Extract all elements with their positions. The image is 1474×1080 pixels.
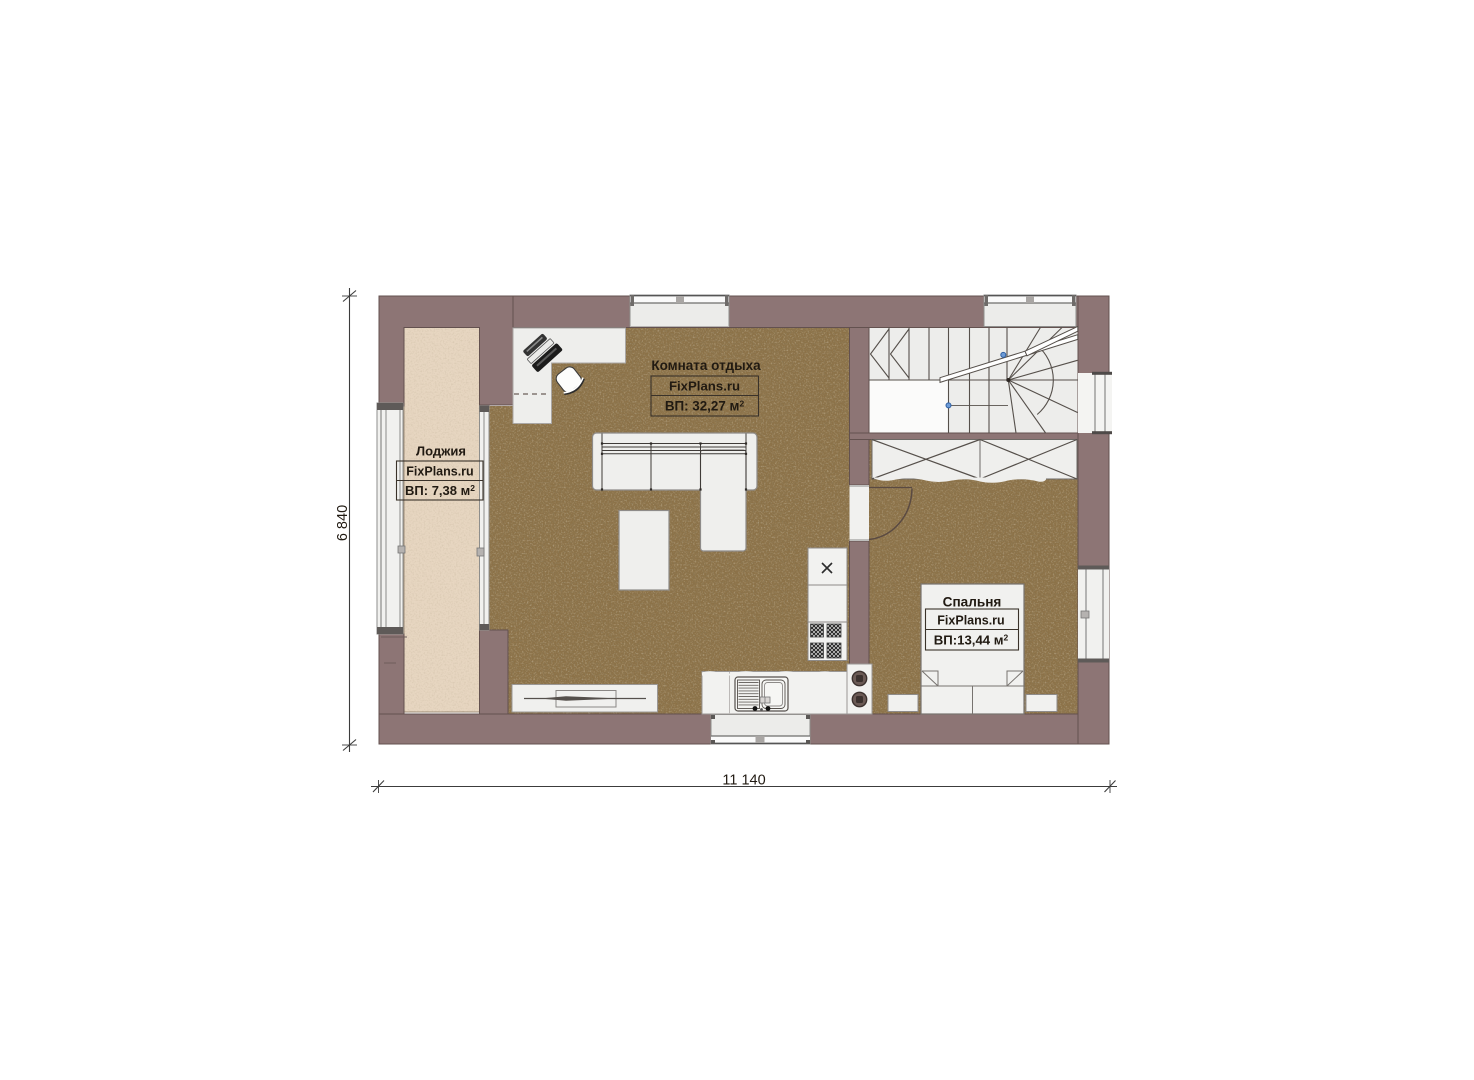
svg-text:ВП: 32,27 м2: ВП: 32,27 м2 bbox=[665, 399, 745, 414]
svg-text:6 840: 6 840 bbox=[335, 505, 351, 541]
svg-text:FixPlans.ru: FixPlans.ru bbox=[937, 614, 1004, 628]
svg-text:Лоджия: Лоджия bbox=[416, 444, 466, 459]
svg-text:FixPlans.ru: FixPlans.ru bbox=[669, 379, 740, 394]
svg-text:Комната отдыха: Комната отдыха bbox=[651, 358, 761, 373]
svg-text:FixPlans.ru: FixPlans.ru bbox=[406, 465, 473, 479]
svg-text:ВП:13,44 м2: ВП:13,44 м2 bbox=[934, 633, 1009, 648]
svg-text:ВП: 7,38 м2: ВП: 7,38 м2 bbox=[405, 483, 475, 498]
svg-text:11 140: 11 140 bbox=[722, 773, 765, 789]
svg-text:Спальня: Спальня bbox=[943, 595, 1002, 610]
